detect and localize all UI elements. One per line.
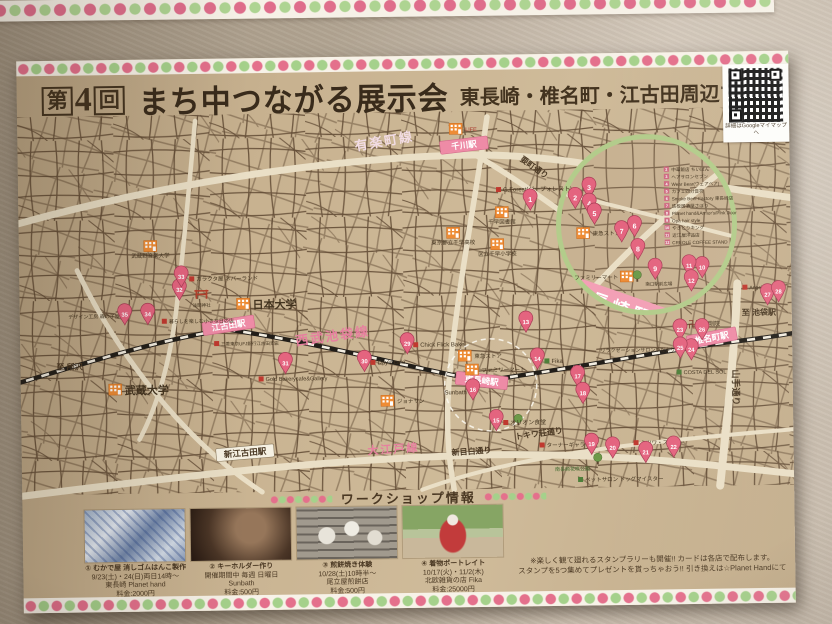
svg-text:6: 6: [666, 197, 668, 201]
shop-label: リラクゼーションサロンひだまり: [600, 346, 682, 354]
map-pin-number: 12: [688, 279, 695, 285]
map-pin-number: 26: [699, 328, 706, 334]
label-marker-icon: [189, 276, 194, 281]
building-name-label: 武蔵大学: [125, 383, 169, 398]
label-marker-icon: [540, 442, 545, 447]
svg-text:12: 12: [665, 241, 669, 245]
svg-text:CREOLE COFFEE STAND: CREOLE COFFEE STAND: [672, 239, 728, 245]
map-pin-number: 34: [144, 312, 151, 318]
workshop-caption-line: 料金:2000円: [86, 590, 186, 600]
shop-label: 南長崎花咲公園: [555, 465, 590, 472]
workshop-item: ① むかで屋 消しゴムはんこ製作9/23(土)・24(日)両日14時〜東長崎 P…: [84, 509, 185, 599]
label-marker-icon: [259, 376, 264, 381]
label-marker-icon: [370, 360, 375, 365]
map-pin-number: 3: [587, 185, 591, 192]
workshop-caption: ① むかで屋 消しゴムはんこ製作9/23(土)・24(日)両日14時〜東長崎 P…: [85, 564, 185, 599]
map-pin-number: 29: [404, 342, 411, 348]
map-pin-number: 23: [677, 328, 684, 334]
building-name-label: ジョナサン: [397, 398, 425, 405]
title-dai-box: 第: [42, 86, 73, 115]
shop-label: Chick Flick Bake: [413, 342, 465, 349]
map-pin-number: 21: [642, 450, 649, 456]
building-name-label: LIFE: [465, 127, 477, 133]
map-pin-number: 33: [178, 275, 185, 281]
map-pin-number: 28: [775, 289, 782, 295]
svg-text:Fika: Fika: [551, 359, 563, 365]
qr-finder-icon: [729, 69, 741, 81]
building-name-label: ファミリーマート: [574, 274, 618, 282]
qr-finder-icon: [769, 69, 781, 81]
svg-text:7: 7: [666, 204, 668, 208]
svg-text:2: 2: [665, 168, 667, 172]
workshop-caption: ③ 煎餅焼き体験10/28(土)10時半〜尾立屋煎餅店料金:500円: [297, 561, 397, 596]
map-pin-number: 35: [121, 313, 128, 319]
svg-text:8: 8: [666, 212, 668, 216]
map-pin-number: 7: [620, 229, 624, 236]
label-marker-icon: [496, 187, 501, 192]
svg-text:暮らしを楽しむ小さな日の店: 暮らしを楽しむ小さな日の店: [169, 317, 234, 325]
svg-text:G.Forest(ジーフォレスト): G.Forest(ジーフォレスト): [503, 186, 572, 194]
workshop-photo: [296, 506, 397, 559]
workshop-photo: [402, 505, 503, 558]
workshop-caption: ④ 着物ポートレイト10/17(火)・11/2(木)北欧雑貨の店 Fika料金:…: [403, 560, 503, 595]
map-pin-number: 30: [361, 359, 368, 365]
map-pin-number: 24: [688, 348, 695, 354]
road-rail-name-label: 至 所沢: [56, 362, 83, 372]
inset-legend-row: 8Planet hand&Armor's/Pink Door: [664, 209, 737, 216]
building-name-label: 日本大学: [253, 297, 297, 312]
workshop-item: ② キーホルダー作り開催期間中 毎週 日曜日Sunbath料金:500円: [190, 508, 291, 598]
map-pin-number: 6: [633, 223, 637, 230]
shop-label: 暮らしを楽しむ小さな日の店: [162, 317, 234, 325]
label-marker-icon: [413, 342, 418, 347]
label-marker-icon: [544, 358, 549, 363]
svg-text:南長崎花咲公園: 南長崎花咲公園: [555, 465, 590, 472]
svg-text:5: 5: [666, 190, 668, 194]
title-number: 4: [74, 81, 92, 119]
exhibition-map-poster: 東長崎駅 有楽町線要町通り西武池袋線大江戸線新目白通りトキワ荘通り山手通り至 所…: [16, 51, 796, 614]
wall-garland-strip: [0, 0, 774, 22]
building-name-label: ファミリーマート: [481, 366, 525, 374]
label-marker-icon: [503, 420, 508, 425]
shop-label: COSTA DEL SOL: [677, 369, 727, 376]
map-pin-number: 1: [528, 197, 532, 204]
svg-text:Planet hand&Armor's/Pink Door: Planet hand&Armor's/Pink Door: [672, 210, 737, 216]
map-pin-number: 18: [580, 391, 587, 397]
qr-caption: 詳細はGoogleマイマップへ: [723, 123, 789, 137]
map-pin-number: 8: [636, 246, 640, 253]
map-pin-number: 13: [523, 320, 530, 326]
map-pin-number: 22: [670, 445, 677, 451]
map-pin-number: 5: [592, 211, 596, 218]
workshop-item: ③ 煎餅焼き体験10/28(土)10時半〜尾立屋煎餅店料金:500円: [296, 506, 397, 596]
workshop-info-section: ワークショップ情報 ① むかで屋 消しゴムはんこ製作9/23(土)・24(日)両…: [22, 479, 796, 614]
workshop-items: ① むかで屋 消しゴムはんこ製作9/23(土)・24(日)両日14時〜東長崎 P…: [84, 505, 503, 600]
label-marker-icon: [162, 319, 167, 324]
label-marker-icon: [677, 370, 682, 375]
road-rail-name-label: 山手通り: [731, 369, 743, 405]
title-kai-box: 回: [94, 85, 125, 114]
qr-block: 詳細はGoogleマイマップへ: [722, 64, 789, 143]
stamp-rally-note: ※楽しく観て廻れるスタンプラリーも開催!! カードは各店で配布します。 スタンプ…: [511, 553, 793, 577]
qr-code: [728, 68, 783, 123]
map-pin-number: 25: [677, 346, 684, 352]
map-pin-number: 10: [699, 266, 706, 272]
dots-decoration: [484, 491, 546, 502]
map-pin-number: 9: [653, 266, 657, 273]
map-pin-number: 16: [470, 388, 477, 394]
map-pin-number: 11: [686, 264, 693, 270]
road-rail-name-label: 至 池袋駅: [742, 307, 777, 317]
svg-text:3: 3: [665, 175, 667, 179]
label-marker-icon: [742, 285, 747, 290]
map-pin-number: 15: [493, 418, 500, 424]
svg-text:11: 11: [665, 233, 669, 237]
svg-text:Day's cafe: Day's cafe: [377, 360, 406, 366]
svg-text:Opa hair style: Opa hair style: [672, 218, 701, 223]
map-pin-number: 32: [176, 288, 183, 294]
map-pin-number: 14: [534, 357, 541, 363]
map-pin-number: 31: [282, 361, 289, 367]
workshop-caption-line: 料金:500円: [192, 588, 292, 598]
svg-text:9: 9: [666, 219, 668, 223]
event-logo-text: まち中つながる展示会: [138, 72, 449, 123]
photo-of-map-poster: 東長崎駅 有楽町線要町通り西武池袋線大江戸線新目白通りトキワ荘通り山手通り至 所…: [0, 0, 832, 624]
svg-text:リラクゼーションサロンひだまり: リラクゼーションサロンひだまり: [600, 346, 675, 354]
dots-decoration: [271, 494, 333, 505]
svg-text:Gold Bakerycafe&Gallery: Gold Bakerycafe&Gallery: [266, 376, 328, 383]
svg-text:10: 10: [665, 226, 669, 230]
label-marker-icon: [634, 440, 639, 445]
workshop-photo: [84, 509, 185, 562]
map-pin-number: 20: [609, 446, 616, 452]
map-pin-number: 19: [588, 442, 595, 448]
qr-finder-icon: [730, 109, 742, 121]
workshop-caption-line: 料金:500円: [298, 587, 398, 597]
map-pin-number: 27: [764, 293, 771, 299]
svg-text:Chick Flick Bake: Chick Flick Bake: [420, 342, 465, 349]
map-pin-number: 2: [573, 195, 577, 202]
shop-label: Gold Bakerycafe&Gallery: [259, 375, 328, 383]
label-marker-icon: [214, 341, 219, 346]
workshop-photo: [190, 508, 291, 561]
shop-label: デザイン工房 森の子屋: [68, 313, 126, 321]
svg-text:COSTA DEL SOL: COSTA DEL SOL: [684, 370, 727, 377]
inset-legend-row: 12CREOLE COFFEE STAND: [665, 239, 729, 246]
svg-text:Sunbath: Sunbath: [444, 390, 466, 396]
workshop-caption: ② キーホルダー作り開催期間中 毎週 日曜日Sunbath料金:500円: [191, 563, 291, 598]
workshop-caption-line: 料金:25000円: [404, 585, 504, 595]
svg-text:デザイン工房 森の子屋: デザイン工房 森の子屋: [68, 313, 119, 321]
map-pin-number: 17: [574, 374, 581, 380]
workshop-item: ④ 着物ポートレイト10/17(火)・11/2(木)北欧雑貨の店 Fika料金:…: [402, 505, 503, 595]
